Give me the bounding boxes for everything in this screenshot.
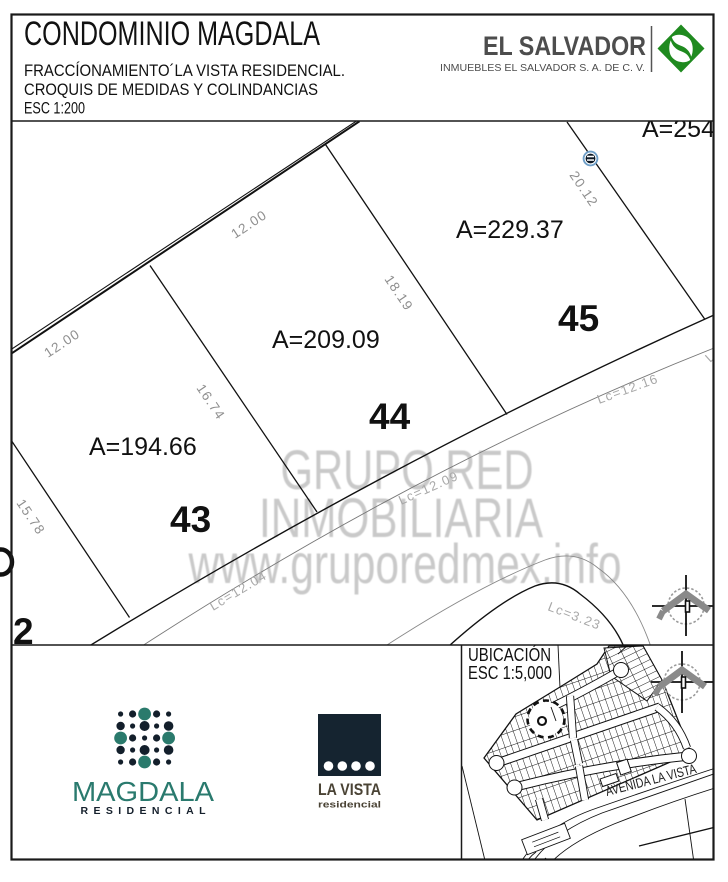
svg-text:CROQUIS DE MEDIDAS Y COLINDANC: CROQUIS DE MEDIDAS Y COLINDANCIAS (24, 81, 318, 99)
svg-text:CONDOMINIO MAGDALA: CONDOMINIO MAGDALA (24, 15, 320, 53)
svg-text:ESC 1:200: ESC 1:200 (24, 100, 85, 118)
svg-text:45: 45 (558, 298, 599, 339)
svg-text:43: 43 (170, 499, 211, 540)
svg-text:LA VISTA: LA VISTA (318, 780, 381, 799)
svg-text:FRACCÍONAMIENTO´LA VISTA RESID: FRACCÍONAMIENTO´LA VISTA RESIDENCIAL. (24, 61, 345, 80)
svg-text:A=209.09: A=209.09 (272, 326, 380, 354)
svg-text:A=229.37: A=229.37 (456, 216, 564, 244)
svg-text:ESC 1:5,000: ESC 1:5,000 (468, 663, 552, 683)
svg-text:RESIDENCIAL: RESIDENCIAL (81, 805, 207, 817)
svg-text:residencial: residencial (318, 800, 381, 811)
svg-text:EL SALVADOR: EL SALVADOR (483, 31, 646, 61)
svg-text:44: 44 (369, 396, 411, 437)
svg-text:MAGDALA: MAGDALA (72, 776, 214, 807)
svg-text:INMUEBLES EL SALVADOR S. A. DE: INMUEBLES EL SALVADOR S. A. DE C. V. (440, 62, 645, 74)
svg-text:UBICACIÓN: UBICACIÓN (468, 644, 551, 665)
svg-text:A=194.66: A=194.66 (89, 433, 197, 461)
